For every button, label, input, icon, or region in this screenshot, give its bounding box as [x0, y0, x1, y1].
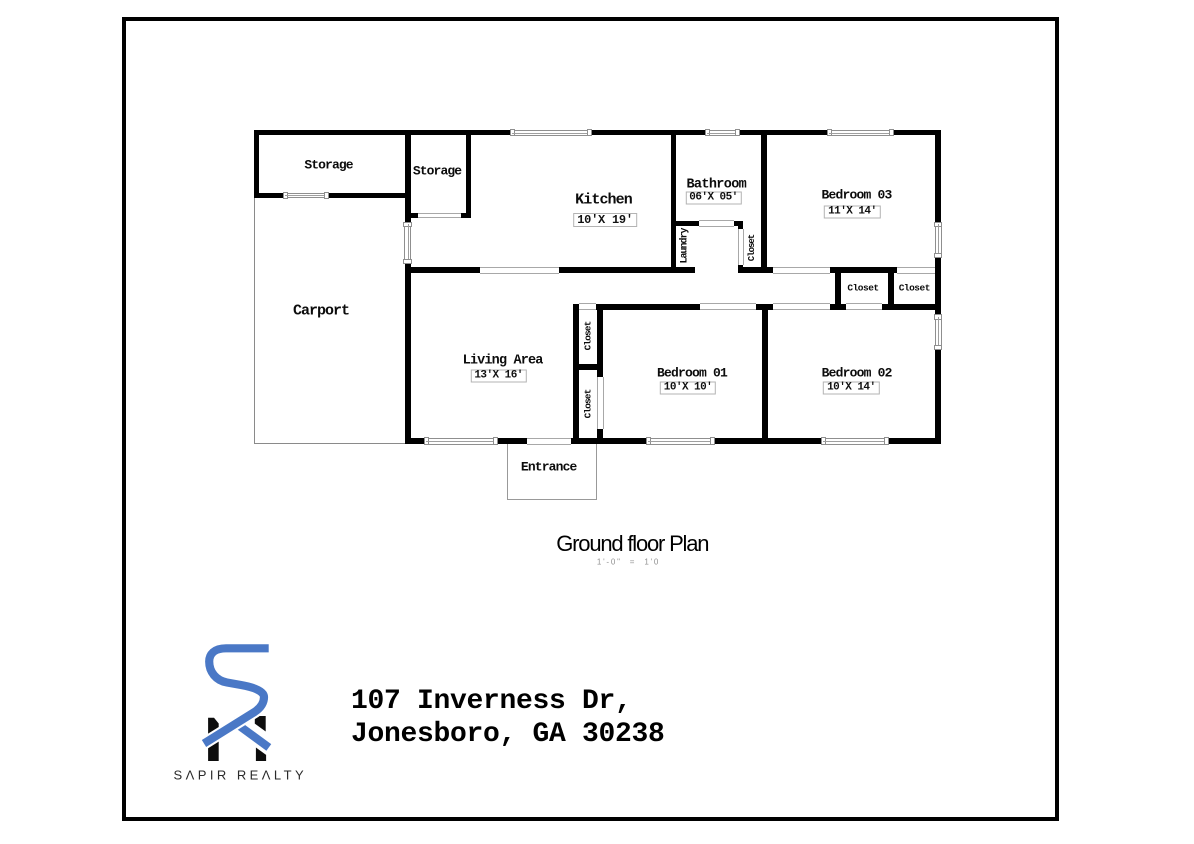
svg-text:SΛPIR REΛLTY: SΛPIR REΛLTY: [174, 768, 308, 783]
